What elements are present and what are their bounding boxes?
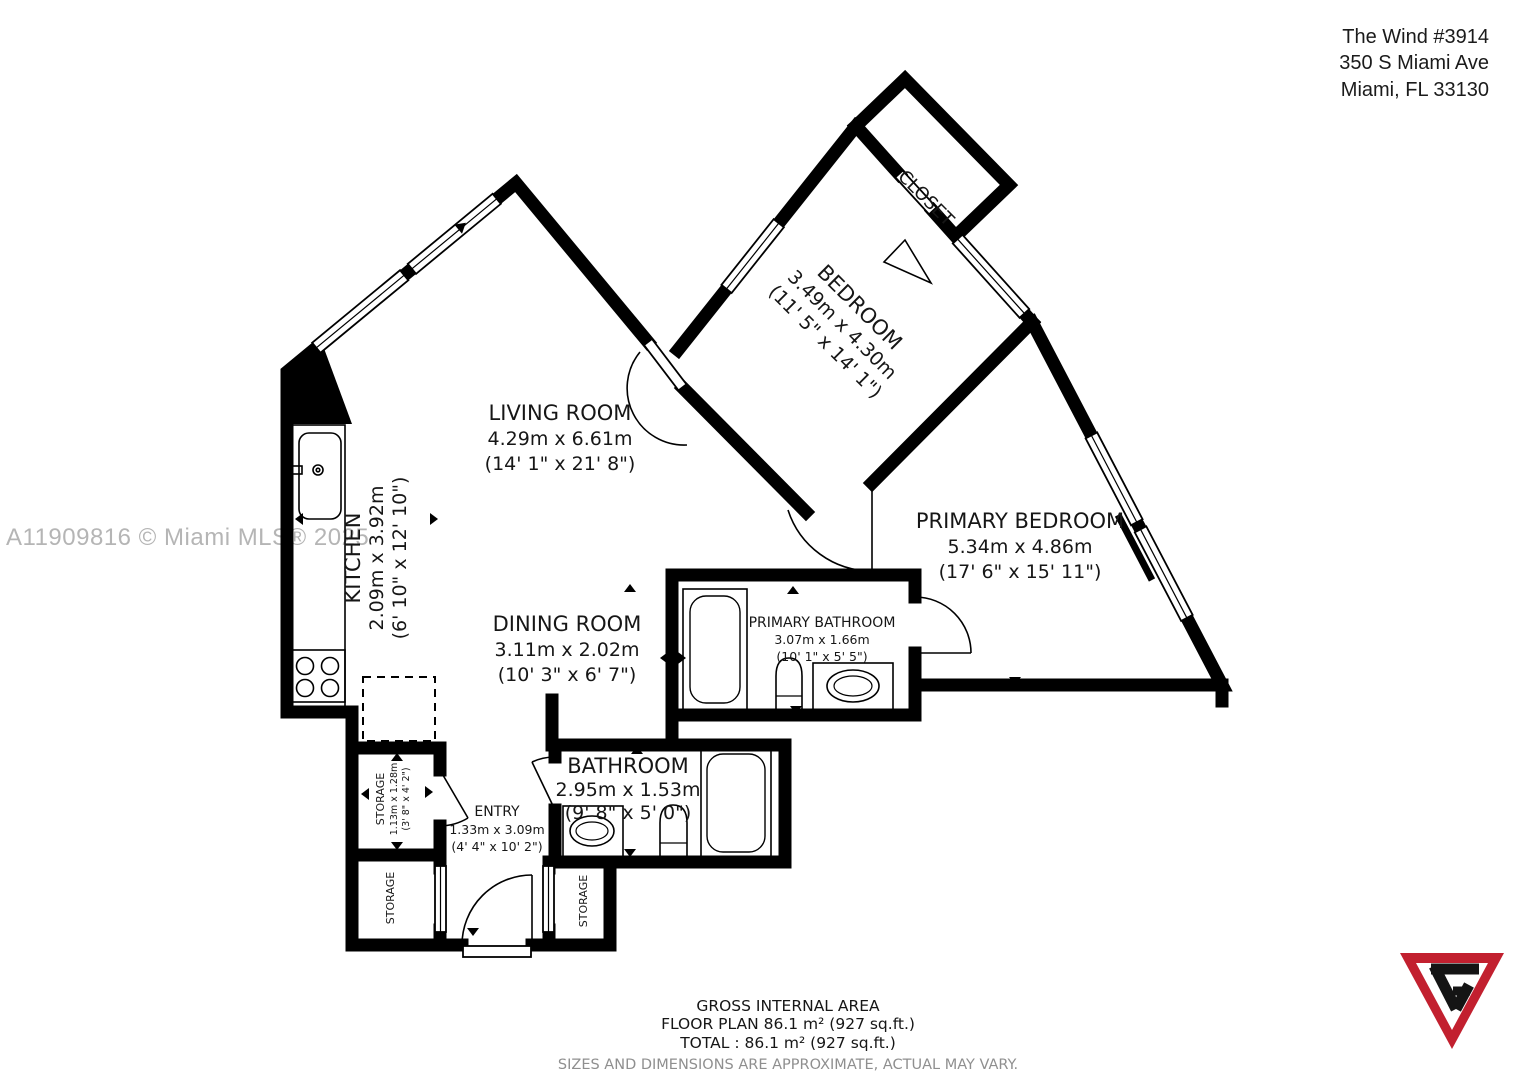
kitchen-counter [288, 425, 345, 708]
svg-text:3.07m x 1.66m: 3.07m x 1.66m [774, 632, 869, 647]
bathroom-door-leaf [532, 762, 555, 810]
svg-text:(17' 6" x 15' 11"): (17' 6" x 15' 11") [939, 561, 1102, 583]
window-bedroom-ne [953, 235, 1030, 318]
svg-text:1.13m x 1.28m: 1.13m x 1.28m [389, 763, 400, 835]
primary-bathroom-label: PRIMARY BATHROOM 3.07m x 1.66m (10' 1" x… [749, 615, 896, 664]
svg-text:(10' 1" x 5' 5"): (10' 1" x 5' 5") [776, 649, 867, 664]
svg-text:(3' 8" x 4' 2"): (3' 8" x 4' 2") [401, 767, 412, 830]
svg-text:STORAGE: STORAGE [384, 872, 397, 924]
svg-text:4.29m x 6.61m: 4.29m x 6.61m [488, 428, 633, 450]
storage-a-label: STORAGE 1.13m x 1.28m (3' 8" x 4' 2") [374, 763, 412, 835]
svg-text:LIVING ROOM: LIVING ROOM [489, 401, 632, 425]
hallway-door-arc [788, 510, 872, 571]
total-area: TOTAL : 86.1 m² (927 sq.ft.) [418, 1034, 1158, 1052]
door-slab-storage-b [435, 866, 446, 932]
disclaimer-text: SIZES AND DIMENSIONS ARE APPROXIMATE, AC… [418, 1057, 1158, 1073]
floorplan-drawing: LIVING ROOM 4.29m x 6.61m (14' 1" x 21' … [0, 0, 1527, 1080]
svg-text:(4' 4" x 10' 2"): (4' 4" x 10' 2") [451, 839, 542, 854]
window-bedroom-nw [721, 219, 783, 293]
brand-logo [1396, 950, 1508, 1054]
svg-text:DINING ROOM: DINING ROOM [493, 612, 642, 636]
svg-text:BATHROOM: BATHROOM [567, 754, 689, 778]
svg-text:1.33m x 3.09m: 1.33m x 3.09m [449, 822, 544, 837]
area-summary: GROSS INTERNAL AREA FLOOR PLAN 86.1 m² (… [418, 997, 1158, 1073]
closet-door-leaf [884, 240, 931, 283]
bedroom-door-arc [627, 352, 687, 445]
svg-text:3.11m x 2.02m: 3.11m x 2.02m [495, 639, 640, 661]
svg-text:(14' 1" x 21' 8"): (14' 1" x 21' 8") [485, 453, 636, 475]
primary-toilet [776, 658, 802, 710]
living-room-label: LIVING ROOM 4.29m x 6.61m (14' 1" x 21' … [485, 401, 636, 475]
svg-text:CLOSET: CLOSET [894, 166, 959, 231]
floorplan-page: The Wind #3914 350 S Miami Ave Miami, FL… [0, 0, 1527, 1080]
svg-text:2.09m x 3.92m: 2.09m x 3.92m [366, 486, 388, 631]
kitchen-sink [299, 433, 341, 519]
primary-bath-door-arc [915, 597, 971, 653]
svg-text:STORAGE: STORAGE [577, 875, 590, 927]
floorplan-area: FLOOR PLAN 86.1 m² (927 sq.ft.) [418, 1015, 1158, 1033]
appliance-dashed-box [363, 677, 435, 741]
svg-text:PRIMARY BEDROOM: PRIMARY BEDROOM [916, 509, 1124, 533]
closet-label: CLOSET [894, 166, 959, 231]
primary-bedroom-label: PRIMARY BEDROOM 5.34m x 4.86m (17' 6" x … [916, 509, 1124, 583]
door-slab-storage-c [543, 866, 554, 932]
entry-threshold [463, 946, 531, 957]
storage-door-leaf [440, 770, 468, 818]
svg-text:STORAGE: STORAGE [374, 773, 387, 825]
svg-text:PRIMARY BATHROOM: PRIMARY BATHROOM [749, 615, 896, 631]
storage-b-label: STORAGE [384, 872, 397, 924]
svg-text:ENTRY: ENTRY [474, 804, 520, 820]
svg-text:(9' 8" x 5' 0"): (9' 8" x 5' 0") [565, 802, 692, 824]
storage-c-label: STORAGE [577, 875, 590, 927]
svg-text:(6' 10" x 12' 10"): (6' 10" x 12' 10") [389, 477, 411, 640]
svg-text:5.34m x 4.86m: 5.34m x 4.86m [948, 536, 1093, 558]
kitchen-label: KITCHEN 2.09m x 3.92m (6' 10" x 12' 10") [341, 477, 411, 640]
bathroom-label: BATHROOM 2.95m x 1.53m (9' 8" x 5' 0") [556, 754, 701, 824]
gross-area-title: GROSS INTERNAL AREA [418, 997, 1158, 1015]
svg-text:(10' 3" x 6' 7"): (10' 3" x 6' 7") [498, 664, 637, 686]
dining-room-label: DINING ROOM 3.11m x 2.02m (10' 3" x 6' 7… [493, 612, 642, 686]
svg-text:2.95m x 1.53m: 2.95m x 1.53m [556, 779, 701, 801]
primary-bathtub [683, 589, 747, 710]
bathroom-tub [701, 748, 771, 858]
bedroom-label: BEDROOM 3.49m x 4.30m (11' 5" x 14' 1") [764, 246, 921, 403]
svg-text:KITCHEN: KITCHEN [341, 513, 365, 604]
